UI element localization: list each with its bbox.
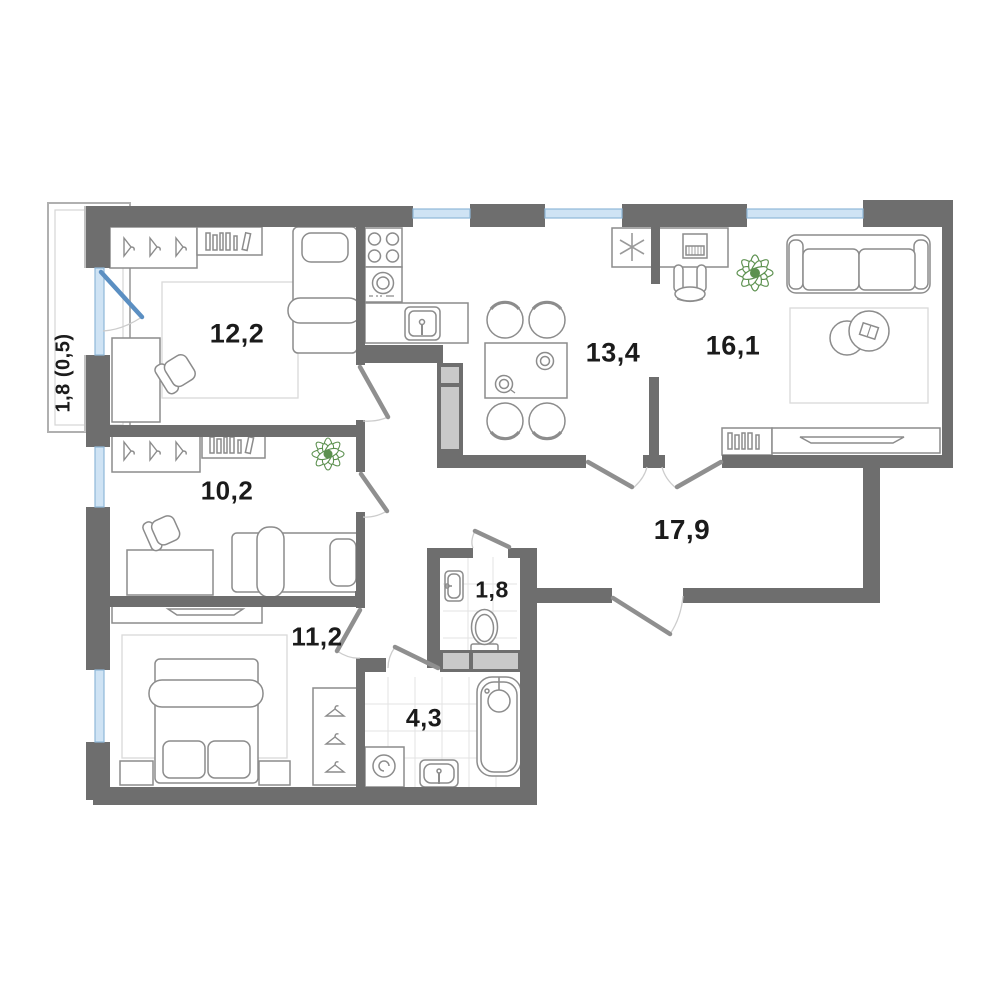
door-bedroom-1	[360, 367, 388, 417]
coffee-tables	[830, 311, 889, 355]
oven-icon	[365, 267, 402, 302]
room-label-bathroom: 4,3	[406, 705, 442, 734]
office-chair-icon	[674, 265, 706, 302]
tv-stand-living-room	[722, 428, 940, 455]
door-living-room	[677, 462, 721, 487]
kitchen-sink-icon	[405, 307, 440, 340]
washing-machine-icon	[365, 747, 404, 787]
door-kitchen	[588, 462, 632, 487]
entrance-door	[613, 598, 670, 634]
desk-living-room	[658, 228, 728, 267]
door-bedroom-2	[361, 474, 387, 511]
plant-bedroom-2	[312, 438, 344, 470]
window-living-room	[747, 209, 863, 218]
air-conditioner-icon	[612, 228, 652, 267]
plant-living-room	[737, 255, 773, 291]
door-wc	[475, 531, 509, 547]
toilet-icon	[471, 610, 498, 654]
room-label-bedroom-3: 11,2	[291, 622, 342, 653]
bathtub-icon	[477, 677, 521, 776]
desk-bedroom-2	[127, 550, 213, 595]
sofa	[787, 235, 930, 293]
room-label-living: 16,1	[706, 331, 761, 362]
desk-bedroom-1	[112, 338, 160, 422]
room-label-balcony: 1,8 (0,5)	[53, 334, 76, 413]
bed-bedroom-2	[232, 527, 362, 597]
room-label-wc: 1,8	[475, 577, 508, 604]
chair-bedroom-2	[141, 512, 182, 552]
shelf-bedroom-1	[197, 227, 262, 255]
double-bed	[149, 659, 263, 783]
floor-plan-drawing	[0, 0, 1000, 1000]
window-bedroom-2	[95, 447, 104, 507]
wardrobe-bedroom-1	[110, 227, 197, 268]
bathroom-sink-icon	[420, 760, 458, 787]
room-label-hallway: 17,9	[654, 514, 711, 546]
wardrobe-bedroom-3	[313, 688, 357, 785]
room-label-bedroom-2: 10,2	[201, 476, 254, 507]
stove-icon	[365, 228, 402, 267]
balcony-door-glass	[95, 268, 104, 355]
floor-plan: 1,8 (0,5) 12,2 13,4 16,1 17,9 10,2 11,2 …	[0, 0, 1000, 1000]
window-kitchen	[413, 209, 470, 218]
room-label-kitchen: 13,4	[586, 338, 641, 369]
window-bedroom-3	[95, 670, 104, 742]
bed-bedroom-1	[288, 227, 361, 353]
window-kitchen-2	[545, 209, 622, 218]
wc-sink-icon	[445, 571, 463, 601]
room-label-bedroom-1: 12,2	[210, 319, 265, 350]
